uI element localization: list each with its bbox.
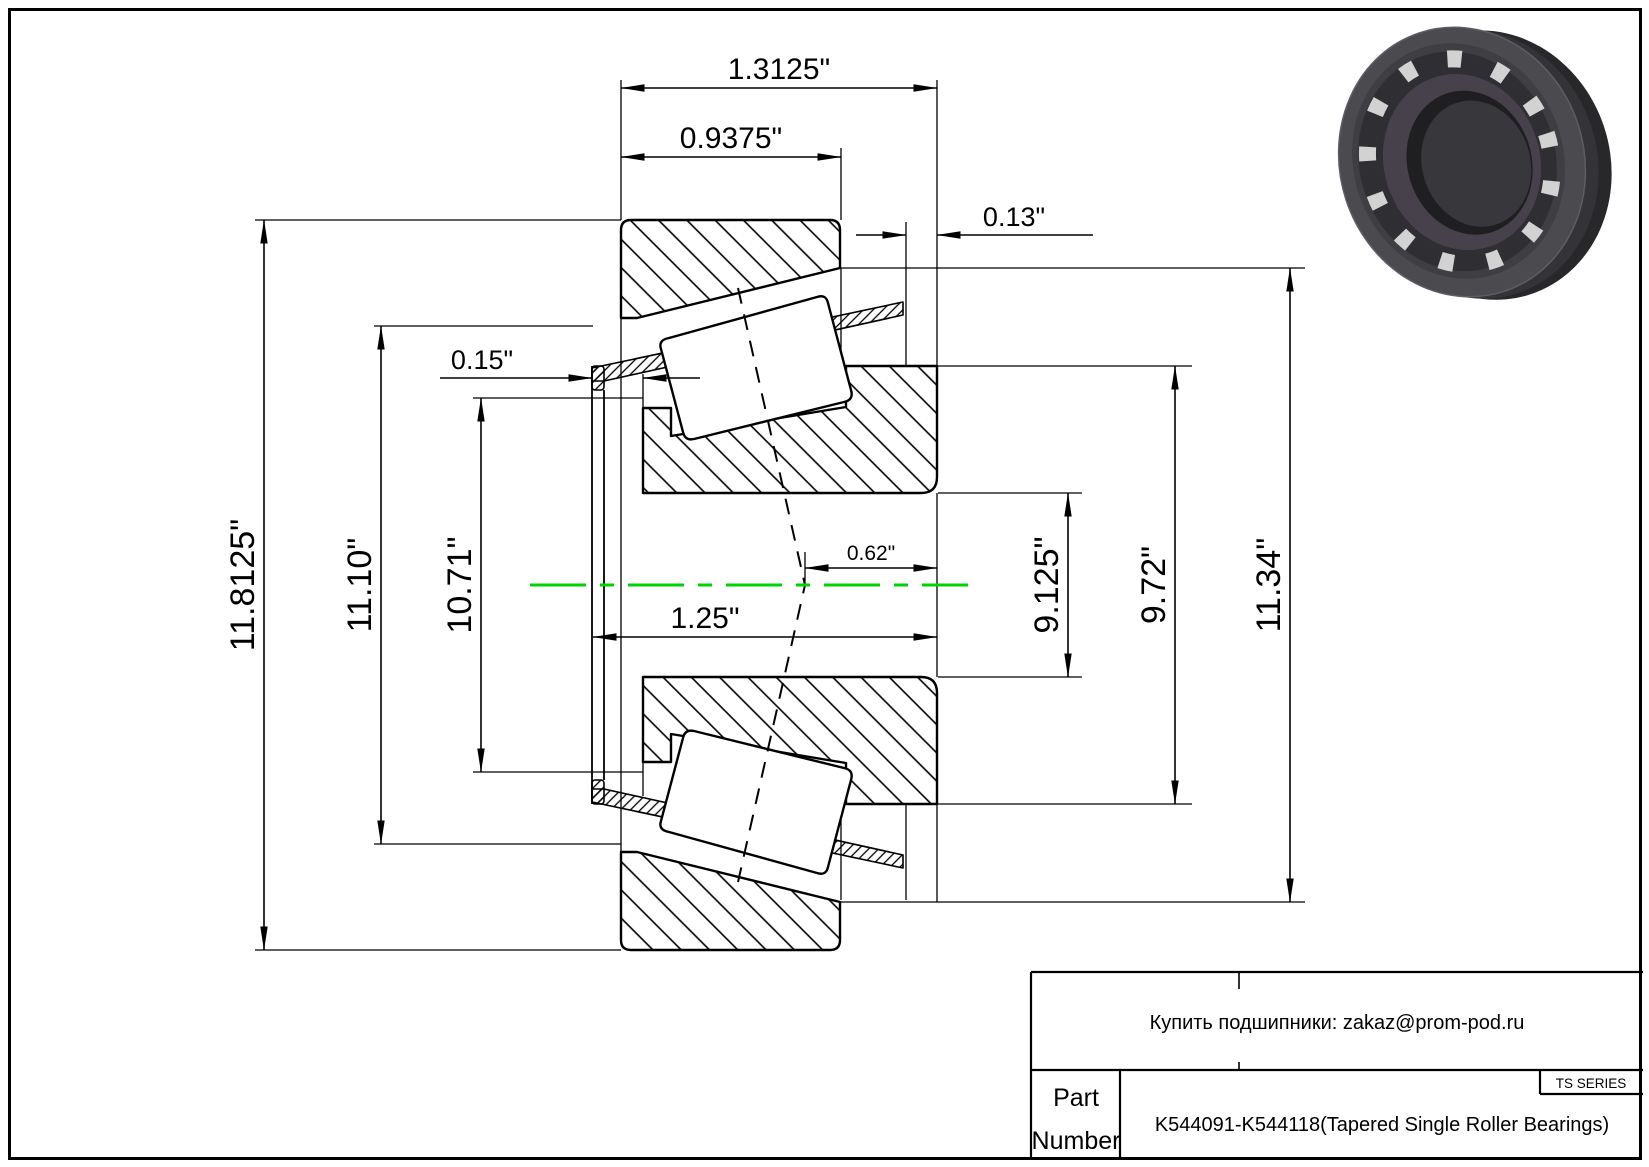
dim-outer-diameter-label: 11.8125" — [224, 519, 262, 651]
dim-overall-width-label: 1.3125" — [728, 53, 830, 86]
dim-cup-width-label: 0.9375" — [680, 122, 782, 155]
catalog-page: 1.3125" 0.9375" 0.13" 0.15" 1.25" 0.62" … — [0, 0, 1649, 1167]
dim-bore-spacing: 9.125" — [1028, 493, 1068, 677]
cage-lip-bottom — [592, 780, 604, 804]
dim-overall-width: 1.3125" — [621, 53, 937, 88]
dim-bore-spacing-label: 9.125" — [1028, 536, 1066, 633]
dim-back-offset: 0.13" — [856, 202, 1093, 235]
part-number-label-line2: Number — [1032, 1127, 1121, 1155]
title-block: Купить подшипники: zakaz@prom-pod.ru TS … — [1031, 972, 1643, 1159]
technical-drawing-canvas: 1.3125" 0.9375" 0.13" 0.15" 1.25" 0.62" … — [0, 0, 1649, 1167]
dim-back-diameter: 11.34" — [1250, 268, 1290, 902]
dim-cage-front-diameter-label: 11.10" — [341, 538, 379, 633]
contact-text: Купить подшипники: zakaz@prom-pod.ru — [1150, 1012, 1525, 1034]
dim-front-offset-label: 0.15" — [451, 345, 513, 375]
cage-lip-top — [592, 366, 604, 390]
dim-rib-back-diameter-label: 9.72" — [1135, 546, 1173, 624]
dim-center-offset-label: 0.62" — [847, 542, 895, 565]
bearing-3d-image — [1304, 0, 1646, 340]
part-number-value: K544091-K544118(Tapered Single Roller Be… — [1155, 1114, 1609, 1136]
dim-center-offset: 0.62" — [805, 542, 937, 568]
dim-rib-front-diameter-label: 10.71" — [441, 536, 479, 633]
dim-rib-front-diameter: 10.71" — [441, 398, 481, 772]
series-label: TS SERIES — [1556, 1076, 1627, 1091]
dim-cage-front-diameter: 11.10" — [341, 326, 381, 844]
dim-back-diameter-label: 11.34" — [1250, 538, 1288, 633]
dim-back-offset-label: 0.13" — [983, 202, 1045, 232]
dim-cup-width: 0.9375" — [621, 122, 841, 157]
dim-inner-width-label: 1.25" — [670, 602, 739, 635]
part-number-label-line1: Part — [1053, 1084, 1099, 1112]
dim-inner-width: 1.25" — [593, 602, 937, 637]
dim-outer-diameter: 11.8125" — [224, 220, 264, 950]
dim-rib-back-diameter: 9.72" — [1135, 366, 1175, 804]
